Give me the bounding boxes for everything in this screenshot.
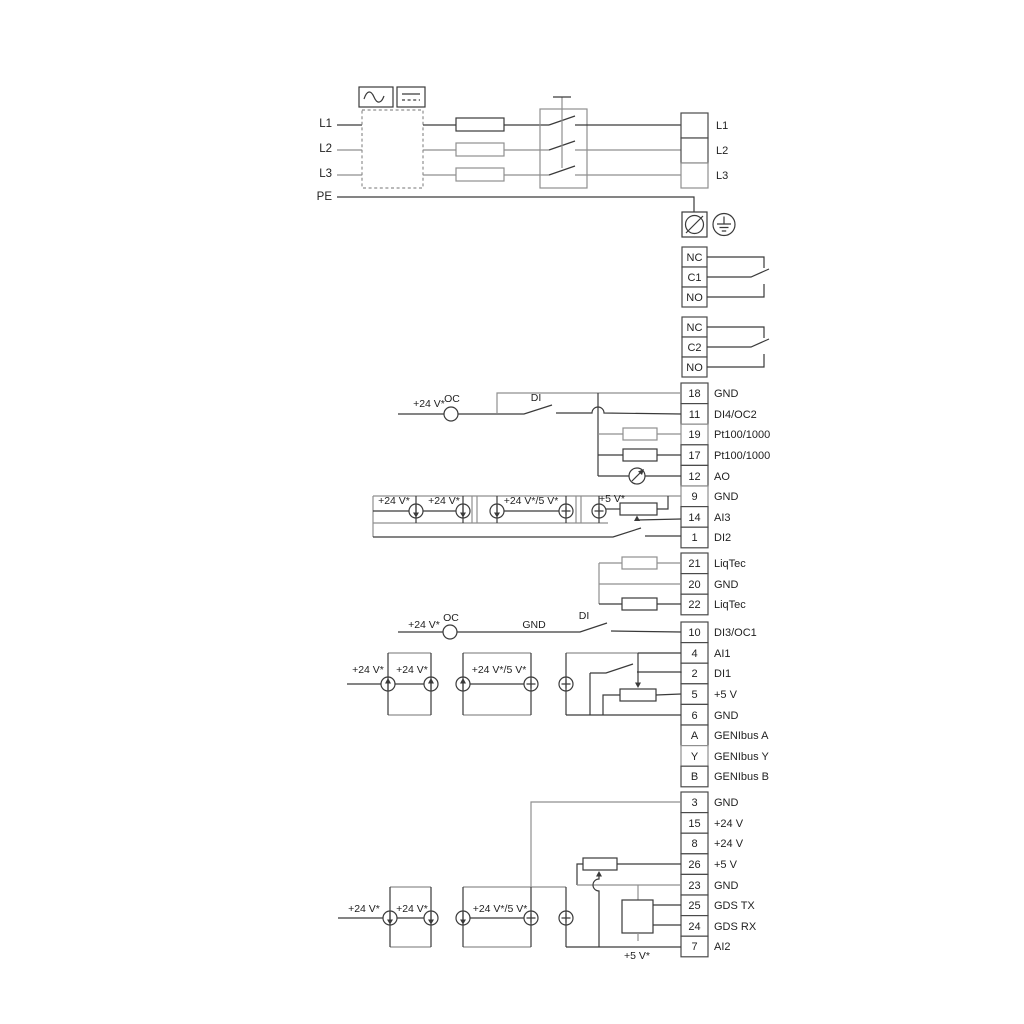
terminal-number: 22 <box>688 599 700 611</box>
terminal-function: GND <box>714 388 739 400</box>
di2-switch <box>373 528 641 537</box>
wiring-diagram-svg: L1 L2 L3 PE <box>0 0 1024 1024</box>
wire-pe <box>337 197 694 212</box>
liqtec-sensor-2 <box>599 598 681 610</box>
terminal-function: AI3 <box>714 512 731 524</box>
terminal-number: 26 <box>688 859 700 871</box>
supply-label: +24 V* <box>408 619 440 631</box>
terminal-function: DI4/OC2 <box>714 409 757 421</box>
relay1-nc-label: NC <box>687 252 703 264</box>
setpoint-potentiometer <box>603 653 681 715</box>
di-label: DI <box>579 610 590 622</box>
terminal-number: 10 <box>688 627 700 639</box>
supply-label: +24 V*/5 V* <box>504 495 559 507</box>
ac-symbol-box <box>359 87 393 107</box>
terminal-number: 7 <box>691 941 697 953</box>
current-source-icon <box>456 653 470 715</box>
supply-label: +5 V* <box>624 950 650 962</box>
supply-label: +24 V* <box>352 664 384 676</box>
relay2-contact <box>707 327 769 367</box>
terminal-cell-L2 <box>681 138 708 163</box>
open-collector-icon <box>444 407 458 421</box>
supply-label: +24 V* <box>396 664 428 676</box>
terminal-number: Y <box>691 751 699 763</box>
rfi-filter-box <box>362 110 423 188</box>
terminal-number: 9 <box>691 491 697 503</box>
terminal-number: 4 <box>691 648 697 660</box>
terminal-number: 8 <box>691 838 697 850</box>
terminal-function: +24 V <box>714 818 744 830</box>
voltage-source-icon <box>524 887 538 947</box>
dc-symbol-box <box>397 87 425 107</box>
pt100-sensor-1 <box>598 428 681 440</box>
terminal-number: 17 <box>688 450 700 462</box>
terminal-number: B <box>691 771 698 783</box>
terminal-function: +24 V <box>714 838 744 850</box>
input-label-l3: L3 <box>319 168 332 180</box>
terminal-function: GDS RX <box>714 921 757 933</box>
terminal-label-L3: L3 <box>716 170 728 182</box>
terminal-function: AI2 <box>714 941 731 953</box>
terminal-function: GND <box>714 880 739 892</box>
gds-sensor <box>622 885 681 941</box>
voltage-source-icon <box>559 496 573 523</box>
liqtec-sensor-1 <box>599 557 681 569</box>
terminal-number: 11 <box>689 409 700 421</box>
current-source-icon <box>456 887 470 947</box>
supply-label: +24 V* <box>428 495 460 507</box>
current-source-icon <box>409 496 423 523</box>
terminal-number: A <box>691 730 699 742</box>
fuse-l1 <box>456 118 504 131</box>
terminal-number: 15 <box>688 818 700 830</box>
terminal-function: DI1 <box>714 668 731 680</box>
terminal-function: Pt100/1000 <box>714 429 770 441</box>
pe-screw-terminal <box>682 212 707 237</box>
terminal-function: AO <box>714 471 730 483</box>
oc-label: OC <box>443 612 459 624</box>
setpoint-potentiometer <box>577 858 681 947</box>
input-label-l1: L1 <box>319 118 332 130</box>
voltage-source-icon <box>559 887 573 947</box>
terminal-function: DI2 <box>714 532 731 544</box>
terminal-function: AI1 <box>714 648 731 660</box>
terminal-number: 1 <box>691 532 697 544</box>
terminal-number: 18 <box>688 388 700 400</box>
terminal-number: 21 <box>688 558 700 570</box>
terminal-number: 5 <box>691 689 697 701</box>
ai3-source-row: +24 V* +24 V* +24 V*/5 V* +5 V* <box>373 493 681 537</box>
terminal-number: 6 <box>691 710 697 722</box>
supply-label: +24 V* <box>348 903 380 915</box>
wire-di3-oc1 <box>611 631 681 632</box>
supply-label: +24 V* <box>378 495 410 507</box>
analog-output-meter-icon <box>598 468 681 484</box>
wire-gnd-18 <box>497 393 681 413</box>
relay1-section: NC C1 NO <box>682 247 769 307</box>
current-source-icon <box>490 496 504 523</box>
supply-label: +24 V* <box>396 903 428 915</box>
group-divider <box>576 496 581 523</box>
fuse-l3 <box>456 168 504 181</box>
voltage-source-icon <box>524 653 538 715</box>
ai2-source-row: +24 V* +24 V* +24 V*/5 V* +5 V* <box>338 858 681 962</box>
terminal-function: GND <box>714 579 739 591</box>
terminal-function: GDS TX <box>714 900 755 912</box>
relay1-contact <box>707 257 769 297</box>
current-source-icon <box>381 653 395 715</box>
fuse-l2 <box>456 143 504 156</box>
terminal-number: 2 <box>691 668 697 680</box>
strip-a-section: 18 11 19 17 12 9 14 1 GND DI4/OC2 Pt100/… <box>373 383 770 548</box>
current-source-icon <box>424 653 438 715</box>
terminal-number: 14 <box>688 512 700 524</box>
di4-switch <box>497 405 552 414</box>
terminal-function: GENIbus Y <box>714 751 769 763</box>
voltage-source-icon <box>559 653 573 715</box>
wire-di4-oc2 <box>556 407 681 414</box>
terminal-number: 24 <box>688 921 700 933</box>
liqtec-section: 21 20 22 LiqTec GND LiqTec <box>599 553 746 615</box>
strip-b-section: 10 4 2 5 6 A Y B DI3/OC1 AI1 DI1 +5 V GN… <box>347 610 769 787</box>
pt100-sensor-2 <box>598 449 681 461</box>
power-section: L1 L2 L3 PE <box>317 87 735 237</box>
oc-label: OC <box>444 393 460 405</box>
terminal-function: GENIbus A <box>714 730 769 742</box>
relay2-nc-label: NC <box>687 322 703 334</box>
terminal-number: 3 <box>691 797 697 809</box>
relay2-c2-label: C2 <box>687 342 701 354</box>
open-collector-icon <box>443 625 457 639</box>
terminal-function: GND <box>714 710 739 722</box>
terminal-function: GENIbus B <box>714 771 769 783</box>
terminal-number: 19 <box>688 429 700 441</box>
terminal-number: 20 <box>688 579 700 591</box>
supply-label: +24 V* <box>413 398 445 410</box>
relay1-no-label: NO <box>686 292 703 304</box>
terminal-function: LiqTec <box>714 599 746 611</box>
terminal-function: +5 V <box>714 859 738 871</box>
input-label-l2: L2 <box>319 143 332 155</box>
current-source-icon <box>424 887 438 947</box>
supply-label: +24 V*/5 V* <box>472 664 527 676</box>
terminal-function: Pt100/1000 <box>714 450 770 462</box>
di-label: DI <box>531 392 542 404</box>
terminal-number: 25 <box>688 900 700 912</box>
contactor-box <box>540 109 587 188</box>
relay1-c1-label: C1 <box>687 272 701 284</box>
terminal-function: GND <box>714 797 739 809</box>
relay2-section: NC C2 NO <box>682 317 769 377</box>
terminal-function: GND <box>714 491 739 503</box>
supply-label: +24 V*/5 V* <box>473 903 528 915</box>
terminal-cell-L3 <box>681 163 708 188</box>
ai1-source-row: +24 V* +24 V* +24 V*/5 V* <box>347 653 681 715</box>
terminal-cell-L1 <box>681 113 708 138</box>
strip-c-section: 3 15 8 26 23 25 24 7 GND +24 V +24 V +5 … <box>338 792 757 962</box>
terminal-function: DI3/OC1 <box>714 627 757 639</box>
terminal-number: 23 <box>688 880 700 892</box>
terminal-number: 12 <box>688 471 700 483</box>
contactor <box>540 97 587 188</box>
wiring-diagram-page: { "colors": {"wire_gray":"#8f8f8f","wire… <box>0 0 1024 1024</box>
terminal-function: LiqTec <box>714 558 746 570</box>
input-label-pe: PE <box>317 191 333 203</box>
current-source-icon <box>383 887 397 947</box>
terminal-function: +5 V <box>714 689 738 701</box>
group-divider <box>472 496 477 523</box>
terminal-label-L1: L1 <box>716 120 728 132</box>
gnd-label: GND <box>522 619 546 631</box>
wire-gnd-3 <box>531 802 681 887</box>
relay2-no-label: NO <box>686 362 703 374</box>
terminal-label-L2: L2 <box>716 145 728 157</box>
earth-ground-icon <box>713 214 735 236</box>
